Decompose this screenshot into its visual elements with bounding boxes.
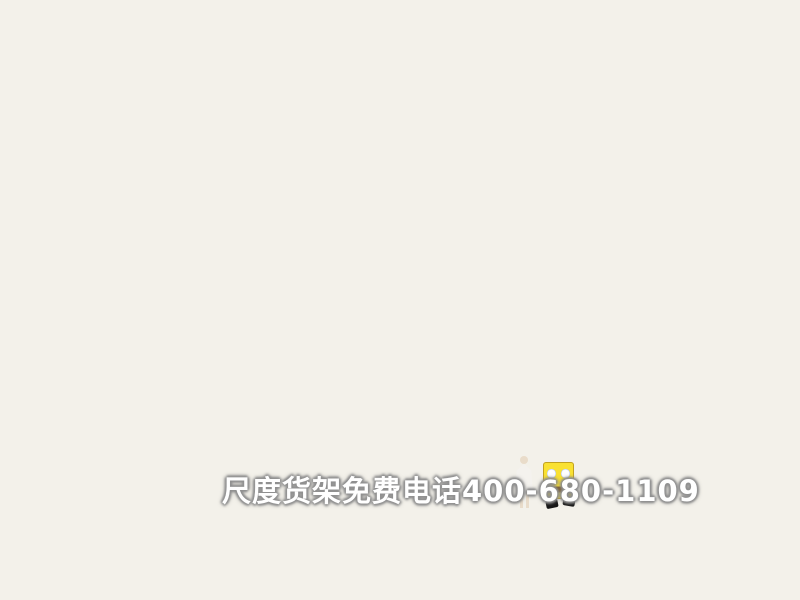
entrance-bench-base <box>0 0 800 600</box>
store-render-scene: Locke Teddy 洛克泰迪 SpongeBob 海绵宝宝 <box>0 0 800 600</box>
watermark-phone-text: 尺度货架免费电话400-680-1109 <box>222 468 700 510</box>
